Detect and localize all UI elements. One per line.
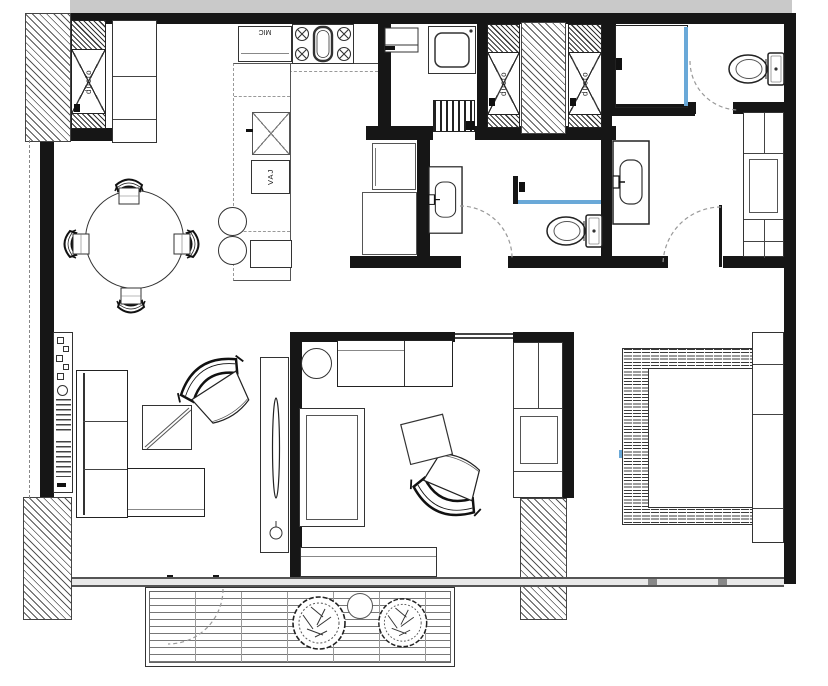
dining-chair xyxy=(117,288,145,313)
toilet-bath2 xyxy=(729,53,784,85)
laundry-sink xyxy=(385,28,418,52)
door-arc-dressing xyxy=(663,207,721,265)
wicker-chair xyxy=(379,599,427,647)
tv xyxy=(270,398,282,539)
washing-machine xyxy=(429,27,476,74)
door-arc-bath1 xyxy=(460,206,512,258)
stove xyxy=(293,25,354,64)
wicker-chair xyxy=(293,597,345,649)
coffee-table-diagonal xyxy=(145,408,191,449)
toilet-bath1 xyxy=(547,215,602,247)
dining-chair xyxy=(174,230,199,258)
vanity-bath1 xyxy=(429,167,462,233)
fixtures-overlay xyxy=(0,0,828,686)
door-arc-balcony xyxy=(168,589,223,644)
vanity-dressing xyxy=(613,141,649,224)
dining-chair xyxy=(115,180,143,205)
floor-plan: ducto ducto ducto MIC VAJ xyxy=(0,0,828,686)
dining-chair xyxy=(65,230,90,258)
armchair-living xyxy=(170,346,265,436)
